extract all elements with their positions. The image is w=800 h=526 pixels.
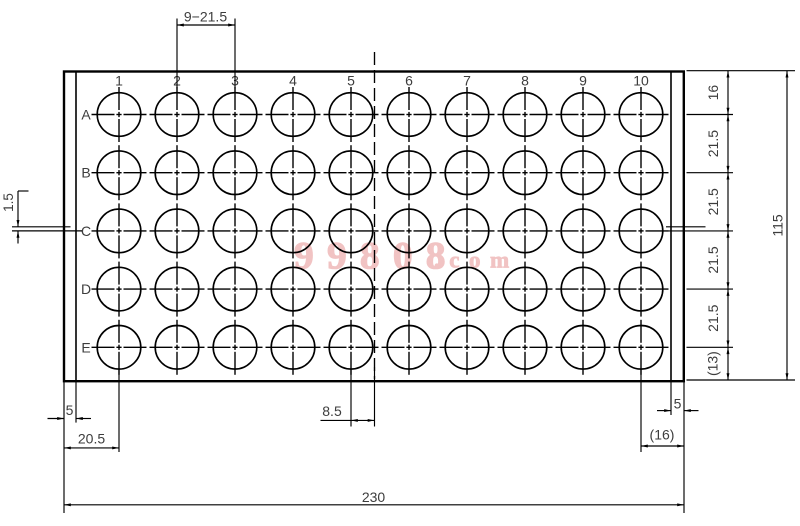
svg-text:9: 9 [579,73,587,89]
svg-text:4: 4 [289,73,297,89]
svg-text:10: 10 [633,73,649,89]
svg-text:5: 5 [66,402,74,418]
svg-text:7: 7 [463,73,471,89]
svg-text:B: B [81,165,90,181]
svg-text:D: D [81,281,91,297]
svg-text:9−21.5: 9−21.5 [184,9,227,25]
svg-text:21.5: 21.5 [705,130,721,157]
svg-text:20.5: 20.5 [78,431,105,447]
svg-text:5: 5 [674,395,682,411]
svg-text:115: 115 [770,214,786,237]
svg-text:(13): (13) [705,351,721,376]
svg-text:21.5: 21.5 [705,246,721,273]
svg-text:A: A [81,107,91,123]
svg-text:6: 6 [405,73,413,89]
svg-text:8.5: 8.5 [322,403,342,419]
svg-text:1.5: 1.5 [1,193,16,212]
svg-text:(16): (16) [650,427,675,443]
svg-text:16: 16 [705,85,721,101]
svg-text:5: 5 [347,73,355,89]
svg-text:8: 8 [521,73,529,89]
svg-text:21.5: 21.5 [705,188,721,215]
svg-text:230: 230 [362,489,386,505]
svg-text:21.5: 21.5 [705,304,721,331]
svg-text:C: C [81,223,91,239]
svg-text:1: 1 [115,73,123,89]
svg-text:E: E [81,339,90,355]
